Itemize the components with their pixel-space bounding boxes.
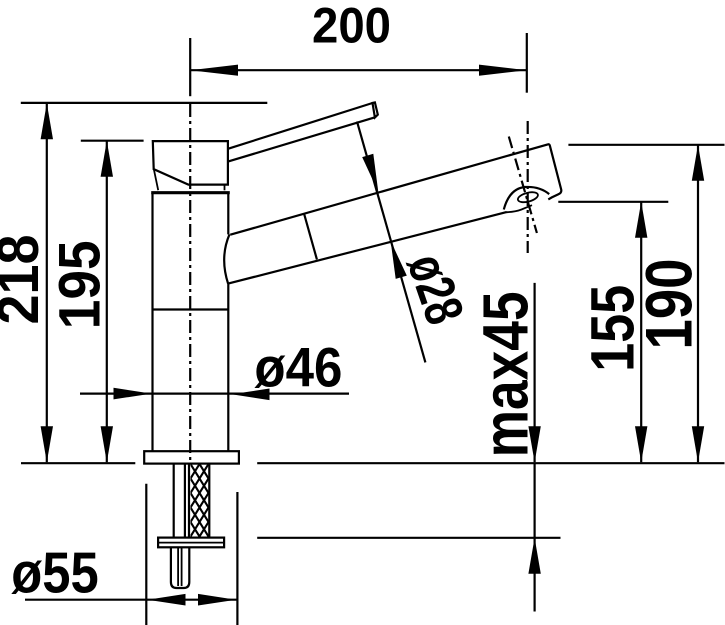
svg-text:200: 200 bbox=[312, 0, 391, 54]
svg-text:218: 218 bbox=[0, 235, 51, 325]
svg-text:190: 190 bbox=[632, 259, 706, 350]
svg-text:ø55: ø55 bbox=[11, 542, 99, 606]
svg-text:195: 195 bbox=[47, 240, 112, 329]
